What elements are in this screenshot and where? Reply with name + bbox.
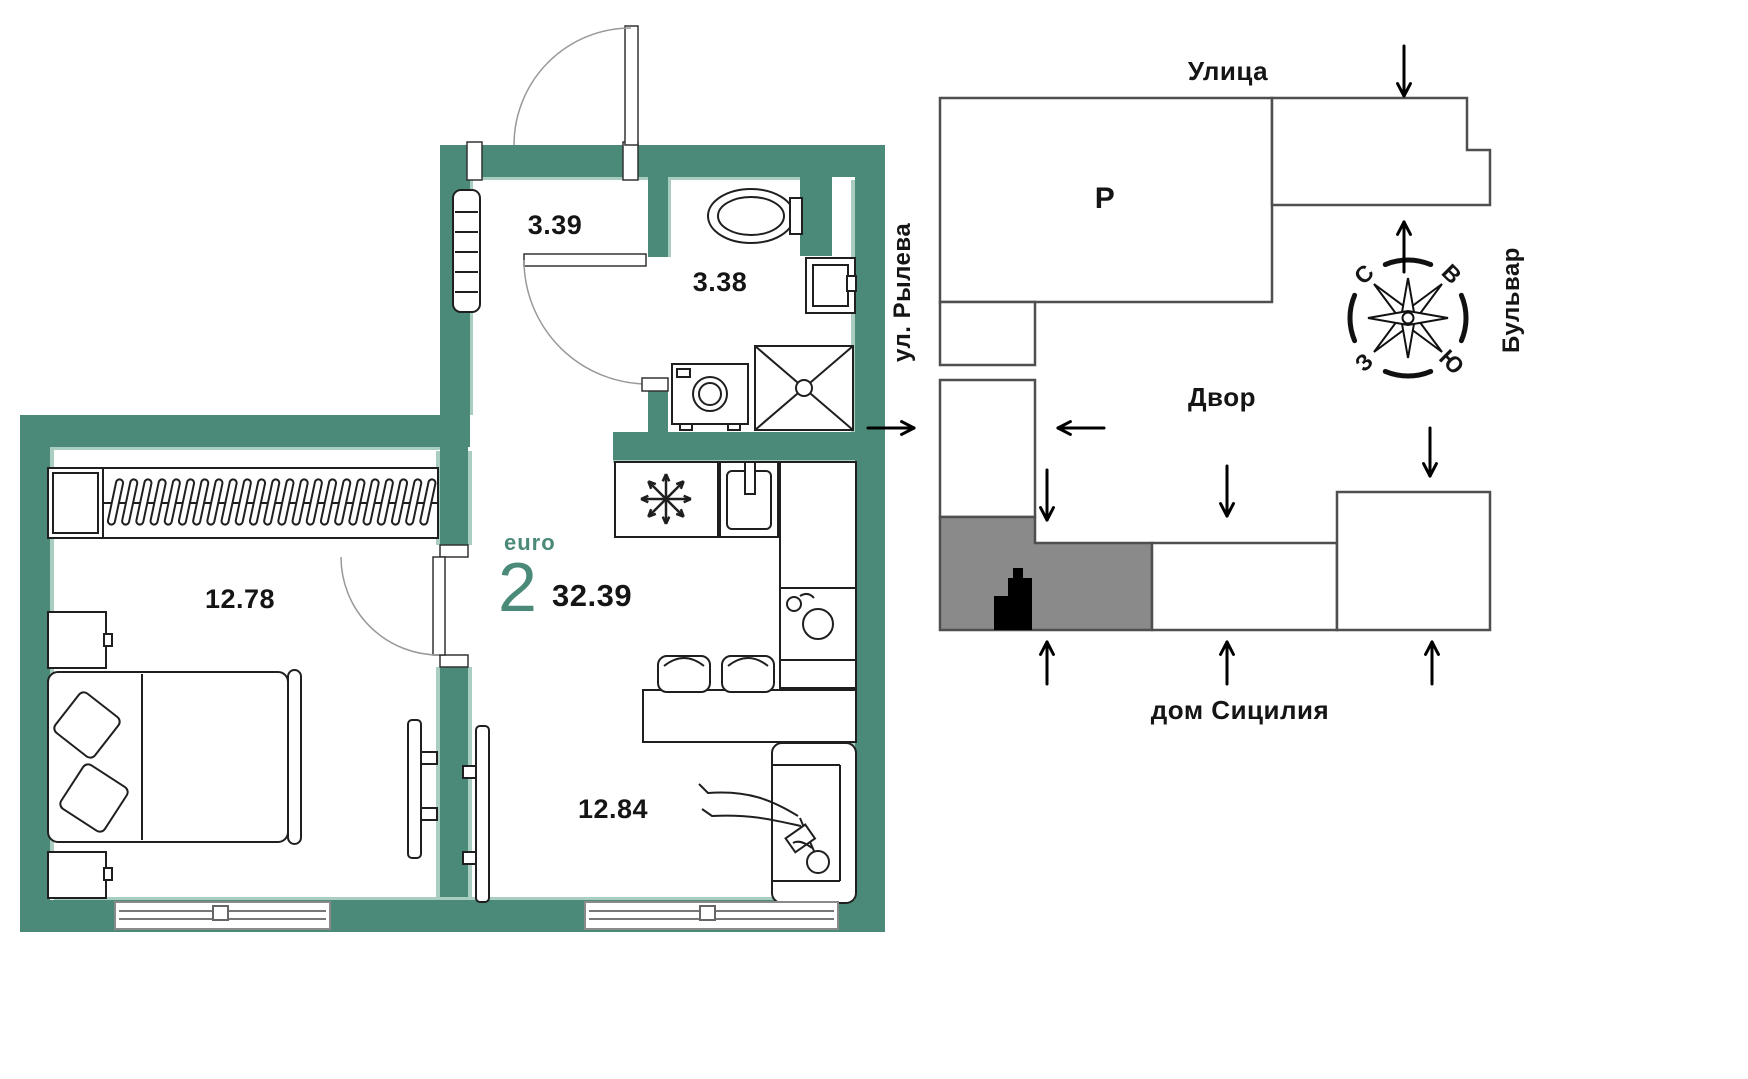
wash-basin xyxy=(806,258,856,313)
building-north-east xyxy=(1272,98,1490,205)
house-name-label: дом Сицилия xyxy=(1130,695,1350,726)
floor-plan-page: 3.39 3.38 12.78 12.84 euro 2 32.39 Улица… xyxy=(0,0,1748,1079)
wall-left xyxy=(20,415,50,932)
nightstand xyxy=(48,852,112,898)
unit-rooms-count: 2 xyxy=(498,552,537,622)
nightstand xyxy=(48,612,112,668)
fridge xyxy=(615,462,718,537)
wall-face xyxy=(50,447,440,450)
building-south-middle xyxy=(1152,543,1337,630)
wall-bedroom-top xyxy=(20,415,468,447)
building-west-small xyxy=(940,302,1035,365)
bar-stool xyxy=(722,656,774,692)
wall-bathroom-lower xyxy=(648,391,668,432)
compass-east: В xyxy=(1432,254,1472,294)
wardrobe xyxy=(48,468,438,538)
wall-face xyxy=(468,667,472,897)
wall-face xyxy=(668,177,800,180)
unit-total-area: 32.39 xyxy=(552,578,632,614)
bedroom-door xyxy=(341,545,468,667)
room-area-bathroom: 3.38 xyxy=(678,267,762,298)
wall-face xyxy=(436,667,440,897)
wall-face xyxy=(613,460,855,463)
wall-face xyxy=(470,177,648,180)
kitchen-sink xyxy=(720,462,778,537)
washing-machine xyxy=(672,364,748,430)
wall-bottom xyxy=(20,900,885,932)
building-south-east xyxy=(1337,492,1490,630)
current-building-block xyxy=(940,517,1152,630)
room-area-hallway: 3.39 xyxy=(513,210,597,241)
bathroom-door xyxy=(524,254,668,391)
wall-hallway-left xyxy=(440,145,470,447)
wall-bathroom-upper xyxy=(648,177,668,257)
parking-label: Р xyxy=(1080,182,1130,216)
street-label-ryleva: ул. Рылева xyxy=(889,232,917,362)
room-area-bedroom: 12.78 xyxy=(186,584,294,615)
wall-face xyxy=(668,180,671,257)
street-label-top: Улица xyxy=(1158,56,1298,87)
wall-partition-lower xyxy=(440,667,468,900)
courtyard-label: Двор xyxy=(1167,382,1277,413)
room-area-living-kitchen: 12.84 xyxy=(559,794,667,825)
wall-face xyxy=(54,897,851,900)
bed xyxy=(48,670,301,844)
wall-face xyxy=(851,180,855,432)
compass-west: З xyxy=(1344,342,1384,382)
wall-kitchen xyxy=(613,432,857,460)
bar-stool xyxy=(658,656,710,692)
wall-duct-shaft xyxy=(800,177,832,256)
shower xyxy=(755,346,853,430)
wall-right xyxy=(855,145,885,932)
wall-face xyxy=(851,460,855,897)
snowflake-icon xyxy=(641,474,691,524)
compass-south: Ю xyxy=(1432,342,1472,382)
toilet xyxy=(708,189,802,243)
wall-partition-upper xyxy=(440,447,468,545)
wall-face xyxy=(50,450,54,897)
boulevard-label: Бульвар xyxy=(1498,245,1526,355)
wall-face xyxy=(468,451,472,545)
apartment-location-marker xyxy=(994,568,1032,630)
wall-face xyxy=(436,451,440,545)
wall-face xyxy=(470,180,473,415)
kitchen-counter xyxy=(780,462,856,688)
person-on-sofa xyxy=(699,784,829,873)
building-west-wing xyxy=(940,380,1035,517)
tv-bedroom xyxy=(408,720,437,858)
wall-top xyxy=(440,145,885,177)
sofa xyxy=(772,743,856,903)
compass-north: С xyxy=(1344,254,1384,294)
bar-table xyxy=(643,690,856,742)
